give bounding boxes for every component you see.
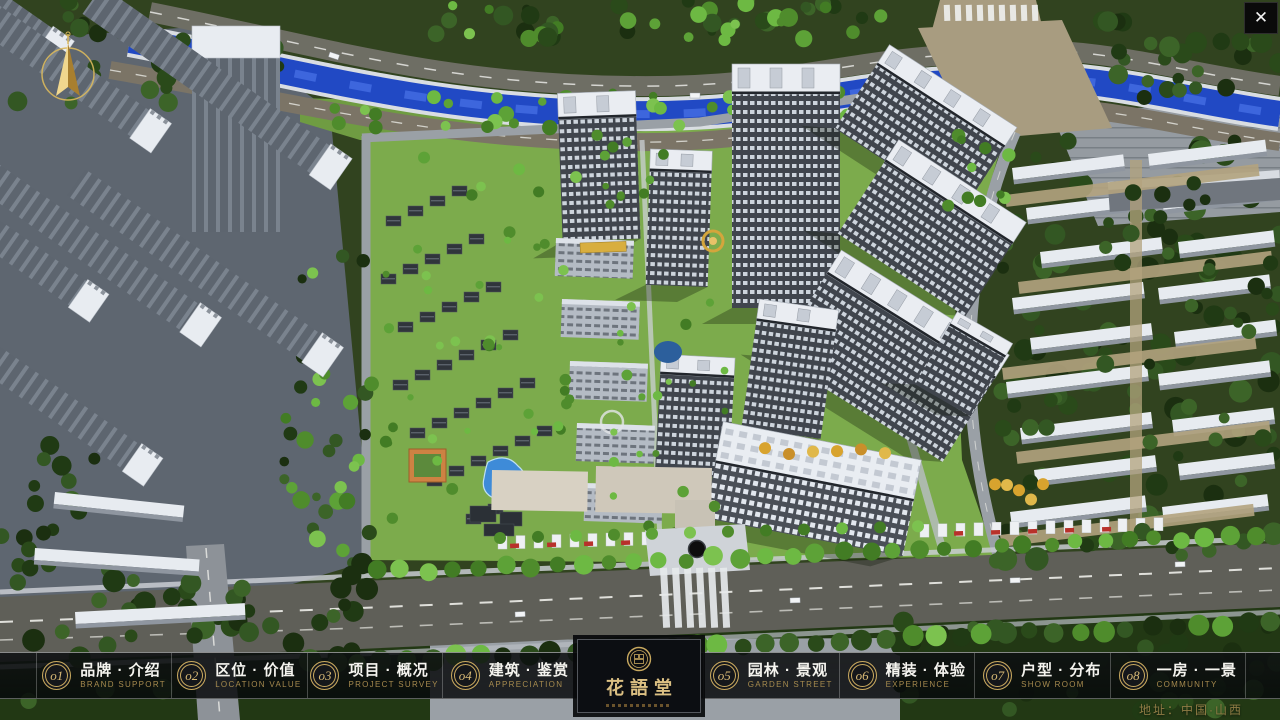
nav-group-right: o5 园林 · 景观 GARDEN STREET o6 精装 · 体验 EXPE… [703,653,1280,698]
nav-number-badge: o8 [1119,661,1148,690]
nav-item-floorplan-distribution[interactable]: o7 户型 · 分布 SHOW ROOM [974,653,1110,698]
nav-number-badge: o5 [710,661,739,690]
nav-item-title: 户型 · 分布 [1021,663,1101,678]
brand-logo-panel[interactable]: 花語堂 [577,639,701,713]
nav-item-title: 园林 · 景观 [748,663,833,678]
nav-item-subtitle: GARDEN STREET [748,681,833,689]
nav-item-title: 品牌 · 介绍 [80,663,166,678]
nav-item-subtitle: SHOW ROOM [1021,681,1101,689]
nav-item-location-value[interactable]: o2 区位 · 价值 LOCATION VALUE [171,653,306,698]
nav-item-title: 区位 · 价值 [215,663,301,678]
nav-item-room-view[interactable]: o8 一房 · 一景 COMMUNITY [1110,653,1247,698]
nav-item-architecture[interactable]: o4 建筑 · 鉴赏 APPRECIATION [442,653,577,698]
nav-number-badge: o2 [177,661,206,690]
nav-item-subtitle: LOCATION VALUE [215,681,301,689]
close-button[interactable]: ✕ [1244,2,1278,34]
nav-item-title: 建筑 · 鉴赏 [489,663,569,678]
nav-item-subtitle: EXPERIENCE [886,681,966,689]
nav-item-subtitle: APPRECIATION [489,681,569,689]
nav-group-left: o1 品牌 · 介绍 BRAND SUPPORT o2 区位 · 价值 LOCA… [0,653,577,698]
nav-item-landscape[interactable]: o5 园林 · 景观 GARDEN STREET [703,653,839,698]
nav-number-badge: o7 [983,661,1012,690]
nav-number-badge: o3 [310,661,339,690]
nav-number-badge: o6 [848,661,877,690]
nav-item-title: 一房 · 一景 [1157,663,1237,678]
nav-item-subtitle: PROJECT SURVEY [348,681,438,689]
nav-item-interior-experience[interactable]: o6 精装 · 体验 EXPERIENCE [839,653,975,698]
brand-seal-icon [626,646,652,672]
close-icon: ✕ [1254,8,1268,28]
brand-title: 花語堂 [600,674,678,700]
site-aerial-map [0,0,1280,720]
compass-north-icon [36,30,100,108]
nav-item-project-overview[interactable]: o3 项目 · 概况 PROJECT SURVEY [307,653,442,698]
brand-subtitle-decoration [606,704,672,707]
nav-item-subtitle: COMMUNITY [1157,681,1237,689]
nav-item-title: 项目 · 概况 [348,663,438,678]
nav-item-brand-intro[interactable]: o1 品牌 · 介绍 BRAND SUPPORT [36,653,171,698]
nav-number-badge: o4 [451,661,480,690]
nav-item-subtitle: BRAND SUPPORT [80,681,166,689]
nav-number-badge: o1 [42,661,71,690]
sales-presentation-screen: ✕ o1 品牌 · 介绍 BRAND SUPPORT o2 区位 · 价值 LO… [0,0,1280,720]
nav-item-title: 精装 · 体验 [886,663,966,678]
address-label: 地址：中国·山西 [1139,701,1243,718]
